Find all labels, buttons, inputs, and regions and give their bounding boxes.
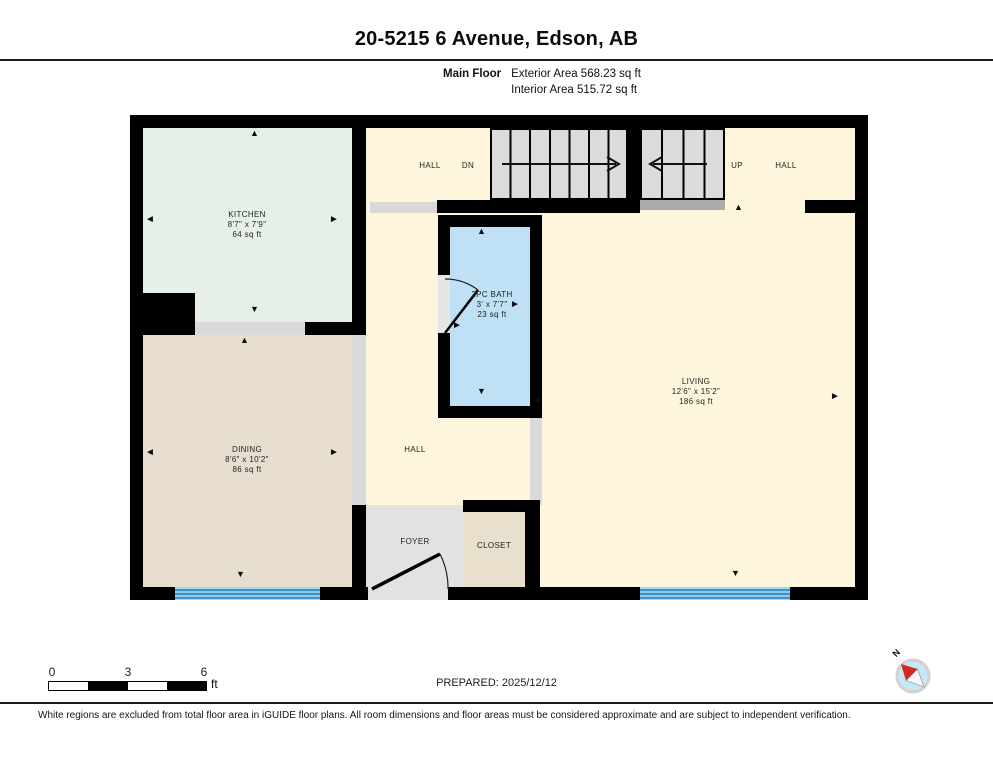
stairs-up-label: UP (731, 161, 743, 171)
room-area: 64 sq ft (228, 230, 267, 240)
dim-arrow-left-icon: ◄ (145, 215, 155, 224)
dim-arrow-up-icon: ▲ (250, 129, 259, 138)
entry-door-opening (368, 587, 448, 600)
living-window (640, 587, 790, 600)
dim-arrow-down-icon: ▼ (477, 387, 486, 396)
dim-arrow-right-icon: ► (510, 300, 520, 309)
prepared-date: PREPARED: 2025/12/12 (0, 677, 993, 689)
wall (463, 500, 530, 512)
hall-label: HALL (419, 161, 440, 171)
stair-landing (640, 200, 725, 210)
dim-arrow-up-icon: ▲ (734, 203, 743, 212)
room-name: LIVING (672, 377, 720, 387)
floor-plan-page: 20-5215 6 Avenue, Edson, AB Main Floor E… (0, 0, 993, 768)
stairs-up (640, 128, 725, 200)
hall-opening (370, 202, 437, 213)
footer-divider (0, 702, 993, 704)
dim-arrow-left-icon: ◄ (532, 396, 542, 405)
area-lines: Exterior Area 568.23 sq ft Interior Area… (511, 68, 641, 96)
stair-divider-wall (628, 115, 640, 205)
header-divider (0, 59, 993, 61)
room-name: KITCHEN (228, 210, 267, 220)
room-dims: 8'6" x 10'2" (225, 455, 269, 465)
room-area: 86 sq ft (225, 465, 269, 475)
closet-label: CLOSET (477, 541, 511, 551)
compass-icon (890, 653, 936, 699)
bath-door-opening (438, 275, 450, 333)
dim-arrow-down-icon: ▼ (250, 305, 259, 314)
dim-arrow-right-icon: ► (329, 448, 339, 457)
room-dims: 8'7" x 7'9" (228, 220, 267, 230)
room-dims: 3' x 7'7" (471, 300, 512, 310)
room-dims: 12'6" x 15'2" (672, 387, 720, 397)
hall-label: HALL (775, 161, 796, 171)
room-area: 23 sq ft (471, 310, 512, 320)
stairs-down (490, 128, 628, 200)
wall (352, 115, 366, 335)
page-title: 20-5215 6 Avenue, Edson, AB (0, 28, 993, 51)
bath-label: 2PC BATH 3' x 7'7" 23 sq ft (471, 290, 512, 320)
door-swing-arrow-icon: ► (452, 321, 462, 330)
wall (305, 322, 366, 335)
wall (352, 505, 366, 587)
living-label: LIVING 12'6" x 15'2" 186 sq ft (672, 377, 720, 407)
dim-arrow-down-icon: ▼ (236, 570, 245, 579)
dim-arrow-up-icon: ▲ (240, 336, 249, 345)
stairs-down-label: DN (462, 161, 474, 171)
dining-hall-opening (352, 335, 366, 505)
wall (525, 500, 540, 587)
dim-arrow-up-icon: ▲ (477, 227, 486, 236)
room-name: 2PC BATH (471, 290, 512, 300)
floor-header: Main Floor Exterior Area 568.23 sq ft In… (443, 68, 641, 96)
wall (805, 200, 855, 213)
wall (437, 200, 640, 213)
dim-arrow-down-icon: ▼ (731, 569, 740, 578)
disclaimer-text: White regions are excluded from total fl… (38, 710, 851, 721)
dim-arrow-left-icon: ◄ (145, 448, 155, 457)
foyer-label: FOYER (400, 537, 429, 547)
kitchen-label: KITCHEN 8'7" x 7'9" 64 sq ft (228, 210, 267, 240)
dining-window (175, 587, 320, 600)
exterior-area: Exterior Area 568.23 sq ft (511, 68, 641, 80)
floor-label: Main Floor (443, 68, 501, 96)
dim-arrow-right-icon: ► (830, 392, 840, 401)
room-name: DINING (225, 445, 269, 455)
room-area: 186 sq ft (672, 397, 720, 407)
hall-label: HALL (404, 445, 425, 455)
dim-arrow-right-icon: ► (329, 215, 339, 224)
hall-living-opening (530, 418, 542, 505)
dining-label: DINING 8'6" x 10'2" 86 sq ft (225, 445, 269, 475)
kitchen-opening (195, 322, 305, 335)
interior-area: Interior Area 515.72 sq ft (511, 84, 641, 96)
wall (130, 293, 195, 335)
floor-plan: HALL DN UP HALL KITCHEN 8'7" x 7'9" 64 s… (130, 115, 868, 600)
